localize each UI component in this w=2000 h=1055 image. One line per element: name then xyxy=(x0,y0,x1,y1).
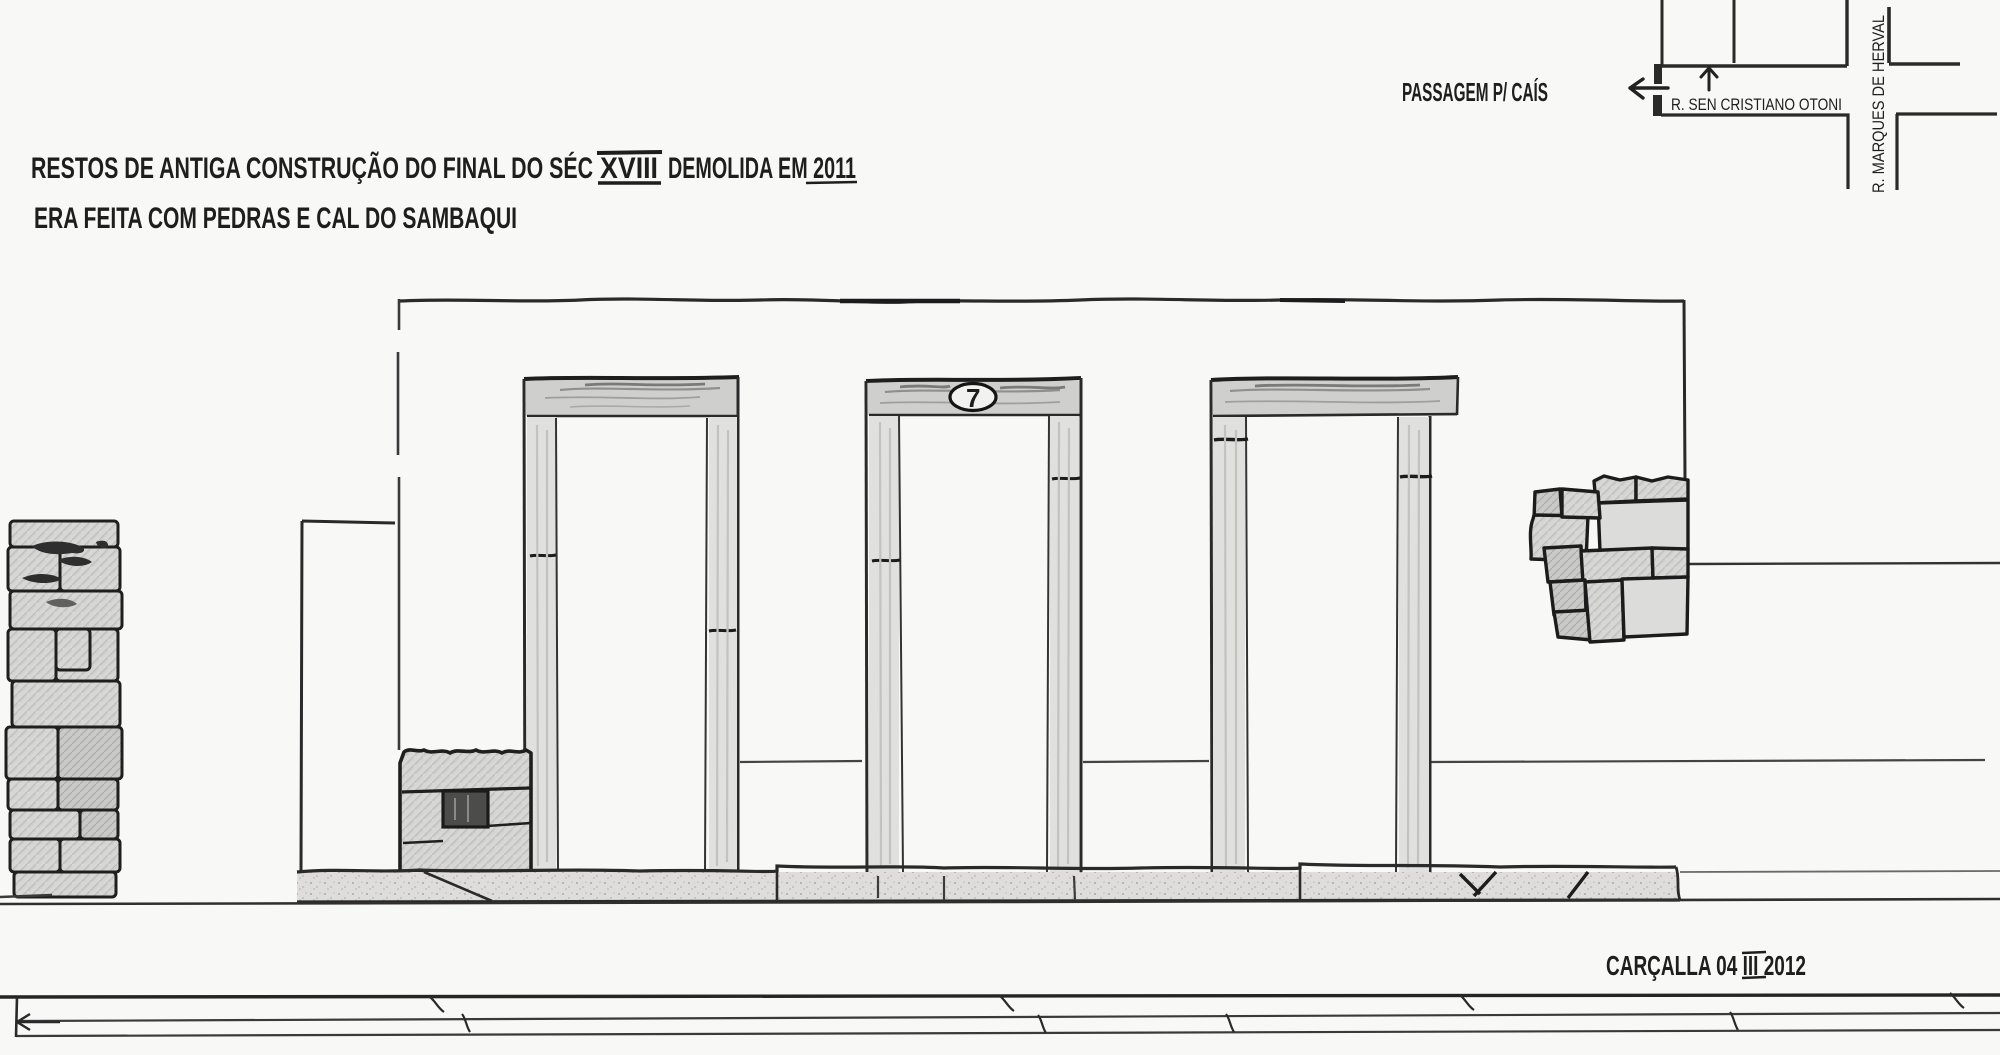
svg-text:R. MARQUES DE HERVAL: R. MARQUES DE HERVAL xyxy=(1869,15,1888,193)
svg-text:RESTOS DE ANTIGA CONSTRUÇÃO DO: RESTOS DE ANTIGA CONSTRUÇÃO DO FINAL DO … xyxy=(31,151,593,185)
svg-text:R. SEN CRISTIANO OTONI: R. SEN CRISTIANO OTONI xyxy=(1671,95,1842,114)
svg-text:CARÇALLA 04 III 2012: CARÇALLA 04 III 2012 xyxy=(1606,950,1806,981)
svg-text:7: 7 xyxy=(966,383,980,413)
svg-text:ERA FEITA COM PEDRAS E CAL DO: ERA FEITA COM PEDRAS E CAL DO SAMBAQUI xyxy=(34,202,517,235)
svg-text:PASSAGEM P/ CAÍS: PASSAGEM P/ CAÍS xyxy=(1402,77,1548,107)
svg-text:XVIII: XVIII xyxy=(600,152,658,185)
svg-text:DEMOLIDA EM 2011: DEMOLIDA EM 2011 xyxy=(668,152,856,185)
